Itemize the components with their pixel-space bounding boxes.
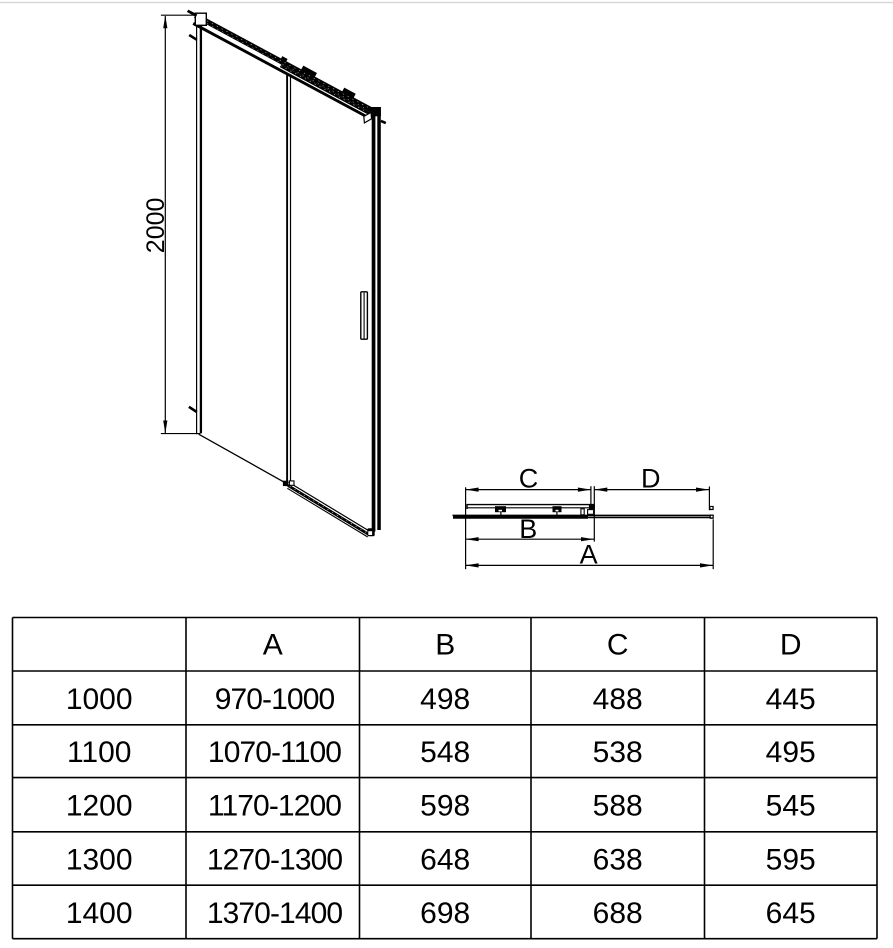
svg-text:D: D [641, 464, 661, 494]
svg-text:688: 688 [593, 897, 643, 930]
svg-text:1070-1100: 1070-1100 [208, 736, 341, 769]
svg-text:598: 598 [420, 790, 470, 823]
svg-text:445: 445 [766, 683, 816, 716]
svg-text:1370-1400: 1370-1400 [207, 897, 343, 930]
svg-text:645: 645 [766, 897, 816, 930]
svg-text:B: B [435, 629, 455, 662]
svg-text:588: 588 [593, 790, 643, 823]
svg-text:548: 548 [420, 736, 470, 769]
svg-text:1200: 1200 [66, 790, 133, 823]
svg-text:970-1000: 970-1000 [215, 683, 335, 716]
svg-text:1170-1200: 1170-1200 [208, 790, 341, 823]
svg-text:538: 538 [593, 736, 643, 769]
svg-text:1000: 1000 [66, 683, 133, 716]
svg-text:1100: 1100 [67, 736, 132, 769]
svg-text:A: A [580, 539, 598, 569]
svg-text:D: D [780, 629, 802, 662]
svg-text:488: 488 [593, 683, 643, 716]
svg-text:638: 638 [593, 844, 643, 877]
svg-text:498: 498 [420, 683, 470, 716]
svg-text:C: C [519, 464, 539, 494]
svg-text:1400: 1400 [66, 897, 133, 930]
svg-text:C: C [607, 629, 629, 662]
svg-text:2000: 2000 [142, 198, 170, 254]
svg-text:595: 595 [766, 844, 816, 877]
svg-text:698: 698 [420, 897, 470, 930]
svg-text:495: 495 [766, 736, 816, 769]
svg-text:1270-1300: 1270-1300 [207, 844, 343, 877]
svg-text:B: B [519, 514, 537, 544]
svg-text:A: A [263, 629, 283, 662]
svg-text:1300: 1300 [66, 844, 133, 877]
svg-text:648: 648 [420, 844, 470, 877]
svg-text:545: 545 [766, 790, 816, 823]
